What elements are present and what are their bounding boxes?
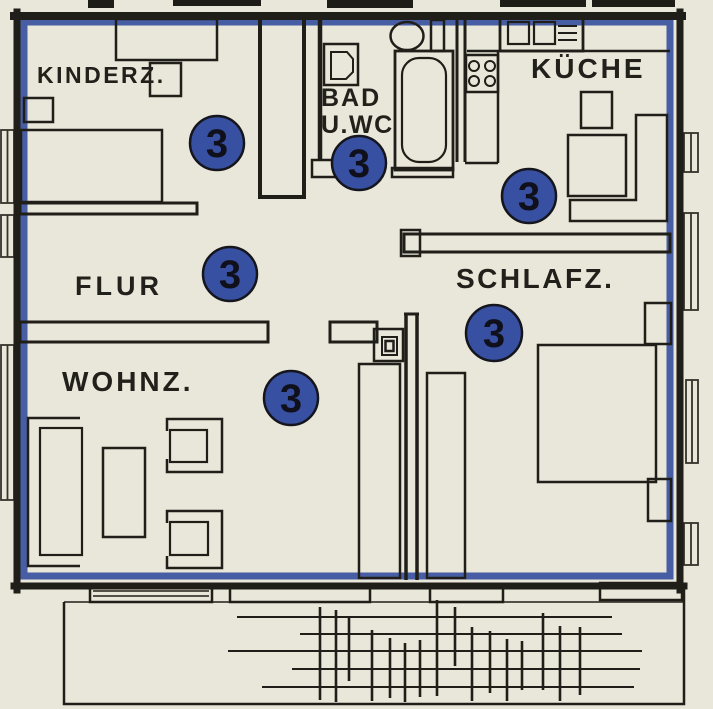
marker-number: 3	[518, 175, 540, 219]
floor-plan-scan: KINDERZ. BAD U.WC KÜCHE FLUR SCHLAFZ. WO…	[0, 0, 713, 709]
marker-number: 3	[348, 142, 370, 186]
label-bad: BAD	[321, 84, 381, 112]
label-kinderzimmer: KINDERZ.	[37, 62, 166, 88]
marker-number: 3	[206, 122, 228, 166]
marker-number: 3	[483, 312, 505, 356]
floor-plan-drawing: KINDERZ. BAD U.WC KÜCHE FLUR SCHLAFZ. WO…	[0, 0, 713, 709]
marker-number: 3	[219, 253, 241, 297]
window-bar-icon	[500, 0, 586, 7]
window-bar-icon	[88, 0, 114, 8]
unit-marker: 3	[466, 305, 522, 361]
window-bar-icon	[592, 0, 675, 7]
window-bar-icon	[173, 0, 261, 6]
label-kueche: KÜCHE	[531, 53, 646, 84]
marker-number: 3	[280, 377, 302, 421]
unit-marker: 3	[190, 116, 244, 170]
window-bar-icon	[327, 0, 413, 8]
unit-marker: 3	[332, 136, 386, 190]
unit-marker: 3	[502, 169, 556, 223]
label-flur: FLUR	[75, 271, 163, 301]
unit-marker: 3	[264, 371, 318, 425]
label-schlafzimmer: SCHLAFZ.	[456, 263, 614, 294]
label-wohnzimmer: WOHNZ.	[62, 366, 194, 397]
unit-marker: 3	[203, 247, 257, 301]
